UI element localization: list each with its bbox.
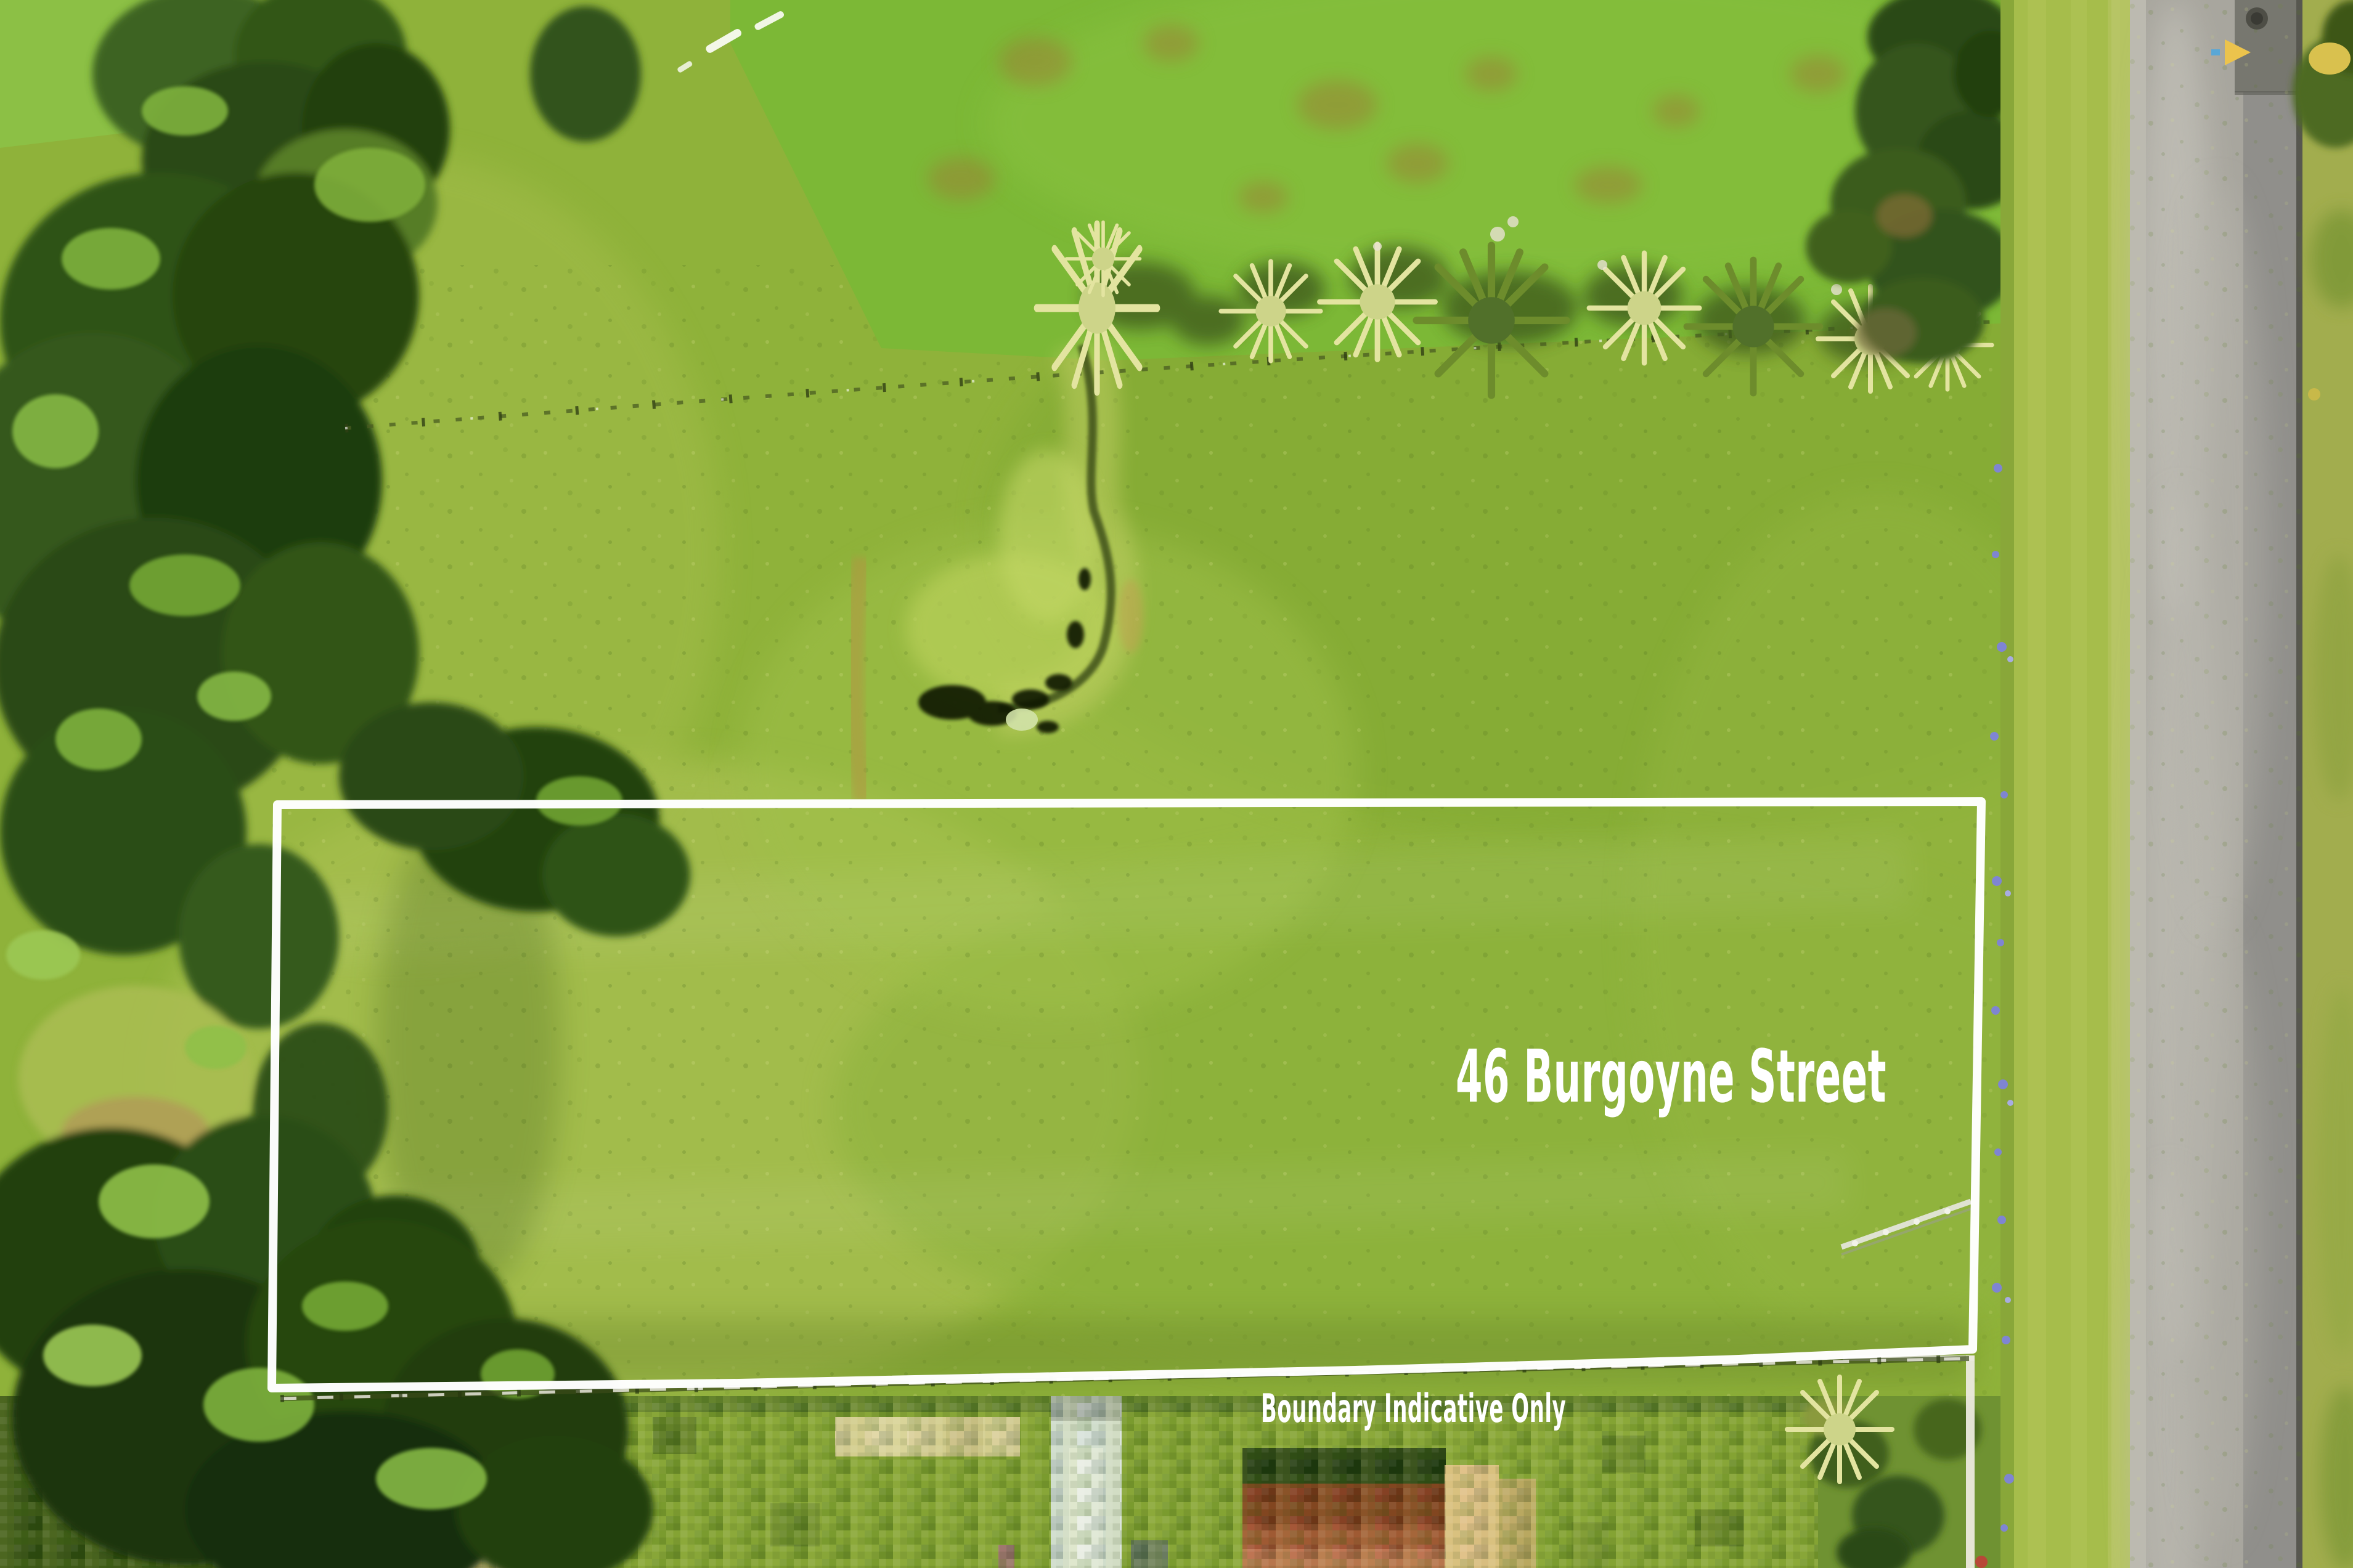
aerial-photo-artwork (0, 0, 2353, 1568)
roadside-verge (1990, 0, 2130, 1568)
road (2130, 0, 2302, 1568)
aerial-photo: 46 Burgoyne Street Boundary Indicative O… (0, 0, 2353, 1568)
boundary-disclaimer-label: Boundary Indicative Only (1261, 1386, 1566, 1432)
property-address-label: 46 Burgoyne Street (1456, 1034, 1886, 1119)
